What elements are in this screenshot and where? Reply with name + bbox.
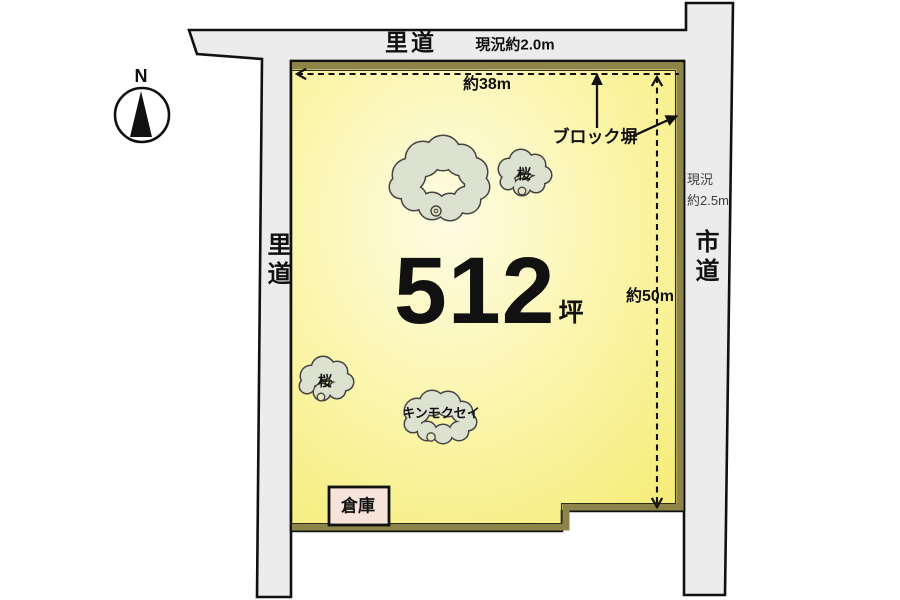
right-road-width-line1: 現況 [687,172,713,187]
right-road-name: 市道 [692,229,716,287]
frontage-dimension-label: 約38m [463,77,511,93]
parcel-area: 512 坪 [394,256,584,326]
parcel-area-value: 512 [394,256,556,326]
tree-kinmokusei-label: キンモクセイ [402,407,480,420]
block-wall-label: ブロック塀 [553,129,638,146]
depth-dimension-label: 約50m [626,289,674,305]
left-road-name: 里道 [264,232,288,290]
tree-sakura-left-label: 桜 [318,374,332,388]
top-road-width-note: 現況約2.0m [475,38,554,53]
compass-north-label: N [135,67,148,85]
compass [115,88,169,142]
right-road-width-line2: 約2.5m [687,193,729,208]
parcel-area-unit: 坪 [559,301,584,326]
top-road-name: 里道 [385,32,437,55]
warehouse-label: 倉庫 [341,498,375,515]
land-plot-diagram: N 里道 現況約2.0m 里道 市道 現況 約2.5m 約38m 約50m ブロ… [0,0,900,600]
tree-sakura-top-label: 桜 [517,167,531,181]
right-road-width-note: 現況 約2.5m [687,169,737,212]
